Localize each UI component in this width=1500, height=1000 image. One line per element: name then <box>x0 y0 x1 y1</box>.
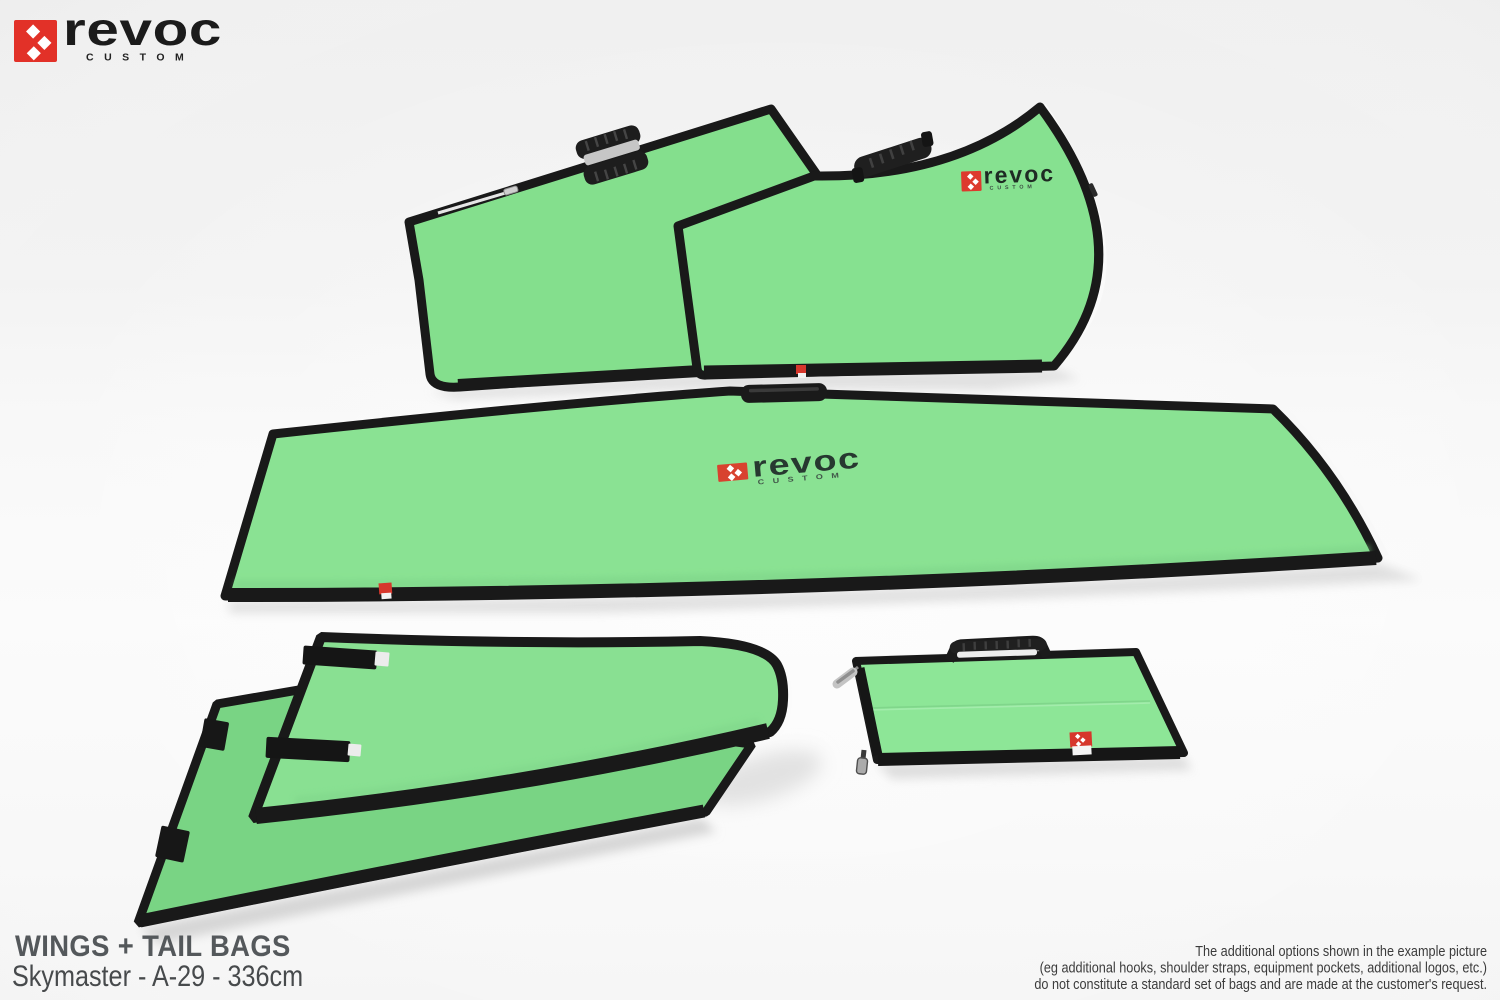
svg-text:do not constitute a standard s: do not constitute a standard set of bags… <box>1034 976 1487 992</box>
svg-text:The additional options shown i: The additional options shown in the exam… <box>1195 943 1487 959</box>
svg-text:CUSTOM: CUSTOM <box>86 52 194 64</box>
svg-text:(eg additional hooks, shoulder: (eg additional hooks, shoulder straps, e… <box>1040 960 1487 976</box>
svg-text:Skymaster - A-29 - 336cm: Skymaster - A-29 - 336cm <box>12 959 303 993</box>
svg-text:revoc: revoc <box>63 4 222 56</box>
